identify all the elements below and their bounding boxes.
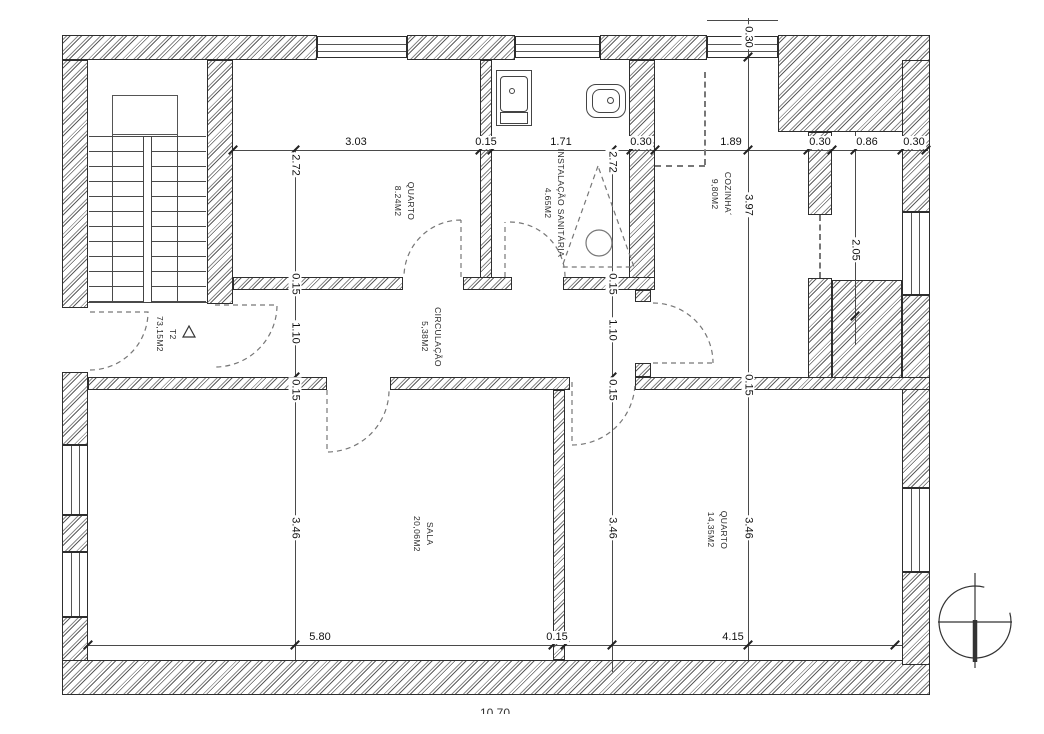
- door-arc: [572, 382, 635, 445]
- dim-label: 4.15: [720, 631, 745, 644]
- dim-label: 0.15: [289, 271, 302, 296]
- dim-label: 3.46: [742, 515, 755, 540]
- dim-label: 2.72: [606, 149, 619, 174]
- door-arc: [215, 305, 277, 367]
- plan-annotations: [0, 0, 1044, 734]
- dim-label: 0.30: [628, 136, 653, 149]
- dim-label: 0.15: [606, 377, 619, 402]
- room-label-t2: T273,15M2: [153, 316, 179, 352]
- door-arc: [653, 303, 713, 363]
- dim-label: 0.86: [854, 136, 879, 149]
- dim-label: 0.15: [289, 377, 302, 402]
- shower-triangle: [562, 166, 634, 267]
- dim-label: 0.15: [742, 372, 755, 397]
- dim-label: 5.80: [307, 631, 332, 644]
- dim-label: 3.46: [606, 515, 619, 540]
- shower-symbol: [562, 166, 634, 267]
- drain-circle: [586, 230, 612, 256]
- dim-label: 0.30: [807, 136, 832, 149]
- dim-label: 1.71: [548, 136, 573, 149]
- floor-plan-canvas: 3.03 0.15 1.71 0.30 1.89 0.30 0.86 0.30 …: [0, 0, 1044, 734]
- dim-label: 0.30: [742, 24, 755, 49]
- dim-label: 2.05: [849, 237, 862, 262]
- dim-label: 3.46: [289, 515, 302, 540]
- room-label-instalacao-sanitaria: INSTALAÇÃO SANITÁRIA4.65M2: [541, 149, 567, 257]
- dim-label: 0.15: [544, 631, 569, 644]
- room-label-cozinha: COZINHA´9,80M2: [708, 172, 734, 216]
- room-label-sala: SALA20,06M2: [410, 516, 436, 552]
- north-arrow-icon: [938, 573, 1012, 668]
- dim-label: 0.15: [473, 136, 498, 149]
- door-arc: [404, 220, 461, 277]
- dim-label: 1.10: [606, 317, 619, 342]
- room-label-quarto-1: QUARTO8.24M2: [391, 182, 417, 220]
- dim-label: 0.15: [606, 271, 619, 296]
- dim-label: 0.30: [901, 136, 926, 149]
- room-label-circulacao: CIRCULAÇÃO5,38M2: [418, 307, 444, 367]
- dim-label: 1.10: [289, 320, 302, 345]
- dim-label: 3.97: [742, 192, 755, 217]
- room-label-quarto-2: QUARTO14,35M2: [704, 511, 730, 549]
- door-arc: [90, 312, 148, 370]
- dim-label: 1.89: [718, 136, 743, 149]
- entrance-marker-icon: [183, 326, 195, 337]
- dim-label: 2.72: [289, 152, 302, 177]
- dim-label: 3.03: [343, 136, 368, 149]
- door-arc: [327, 390, 389, 452]
